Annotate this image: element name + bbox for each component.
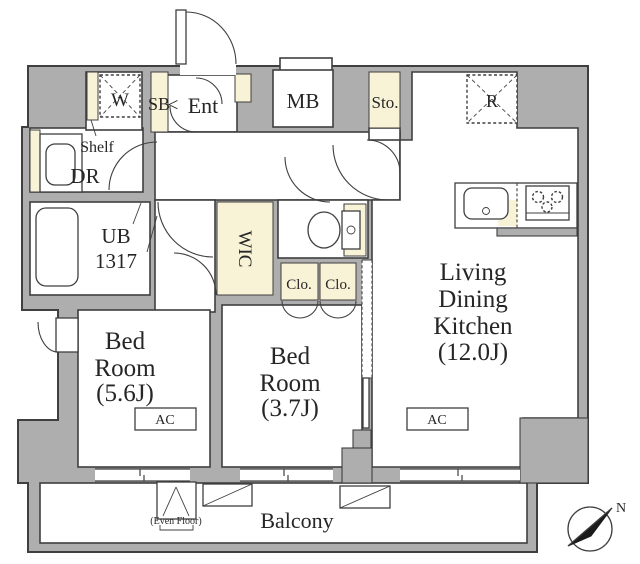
ldk-corner-pillar — [520, 418, 588, 483]
label-bedroom2-line2: Room — [259, 370, 321, 397]
label-ldk-line2: Dining — [438, 286, 508, 313]
label-even-floor: (Even Floor) — [150, 516, 201, 527]
label-ldk-size: (12.0J) — [438, 339, 508, 366]
bathtub — [36, 208, 78, 286]
label-closet-left: Clo. — [286, 277, 311, 293]
partition-lower-rail — [363, 378, 369, 428]
label-ldk-line1: Living — [440, 259, 507, 286]
stove-burner-2 — [552, 192, 563, 203]
label-ldk-line3: Kitchen — [433, 313, 513, 340]
label-bedroom1-line2: Room — [94, 355, 156, 382]
ldk-window-gap — [400, 469, 520, 481]
label-unit-bath-line2: 1317 — [95, 249, 137, 273]
label-refrigerator: R — [486, 91, 498, 111]
stove-burner-3 — [542, 202, 552, 212]
label-shelf: Shelf — [80, 139, 114, 156]
vanity-side-strip — [30, 130, 40, 192]
shelf-strip — [87, 72, 98, 120]
front-door-swing-arc — [186, 12, 236, 64]
toilet-tank — [342, 211, 360, 249]
bedroom1-side-window-arc — [38, 322, 58, 352]
corridor — [155, 200, 215, 312]
front-door-leaf — [176, 10, 186, 64]
label-bedroom2-line1: Bed — [270, 343, 311, 370]
label-washer: W — [111, 90, 129, 111]
bedroom1-window-gap — [95, 469, 190, 481]
kitchen-under-wall — [497, 228, 577, 236]
label-bedroom1-line1: Bed — [105, 328, 146, 355]
stove-burner-1 — [533, 192, 544, 203]
hallway — [155, 132, 400, 200]
bedroom1-side-window — [56, 318, 78, 352]
label-walk-in-closet: WIC — [234, 231, 255, 268]
label-closet-right: Clo. — [325, 277, 350, 293]
label-dressing-room: DR — [70, 164, 99, 188]
label-ac-ldk: AC — [427, 413, 446, 428]
label-bedroom2-size: (3.7J) — [261, 395, 319, 422]
label-bedroom1-size: (5.6J) — [96, 380, 154, 407]
bedroom2-step-wall-lower — [342, 448, 372, 483]
label-meter-box: MB — [287, 89, 320, 113]
label-ac-bedroom1: AC — [155, 413, 174, 428]
label-balcony: Balcony — [260, 508, 333, 533]
entrance-side-cabinet — [235, 74, 251, 102]
toilet-bowl — [308, 212, 340, 248]
label-entrance-arrow: < — [168, 95, 179, 116]
floor-plan-svg: W SB < Ent MB Sto. R Shelf DR UB 1317 WI… — [0, 0, 640, 564]
storage-lower-band — [369, 128, 400, 140]
bedroom2-ldk-partition — [362, 260, 372, 378]
bedroom2-window-gap — [240, 469, 333, 481]
label-storage: Sto. — [372, 93, 399, 112]
label-entrance: Ent — [188, 93, 219, 118]
front-doorway-gap — [180, 63, 236, 75]
floor-plan: W SB < Ent MB Sto. R Shelf DR UB 1317 WI… — [0, 0, 640, 564]
label-compass-north: N — [616, 501, 626, 516]
label-unit-bath-line1: UB — [101, 224, 130, 248]
